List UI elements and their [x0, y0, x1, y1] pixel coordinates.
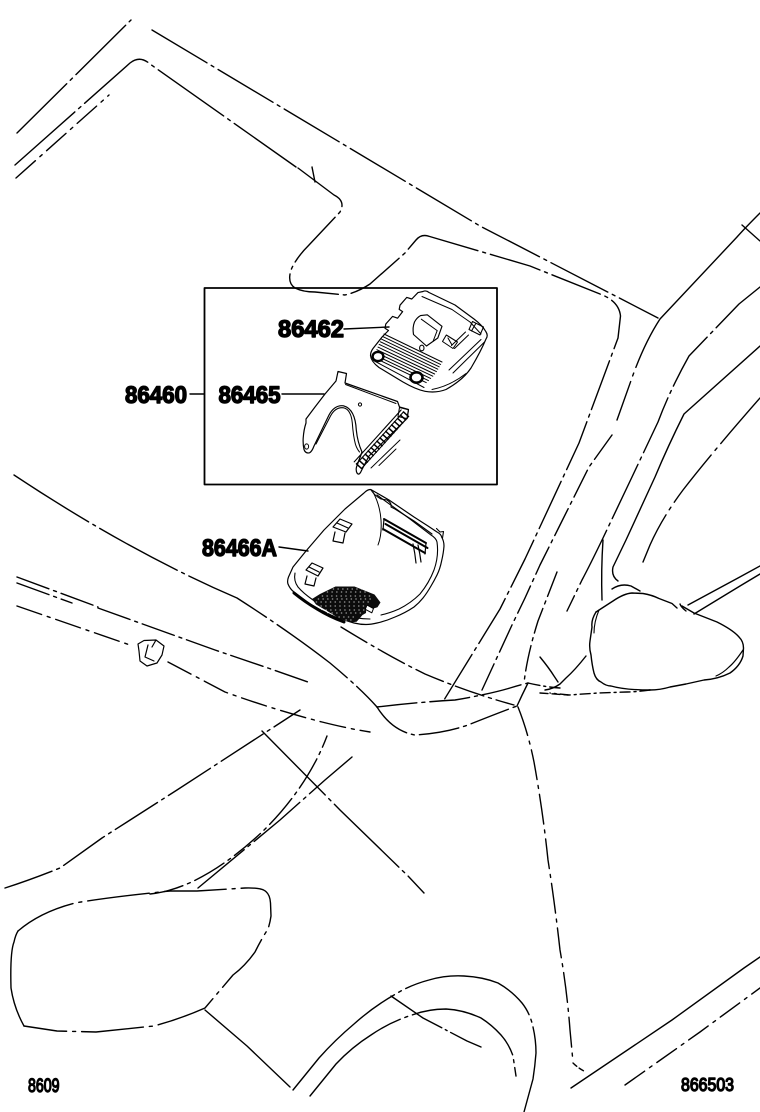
svg-text:86466A: 86466A [202, 535, 277, 562]
svg-text:86460: 86460 [125, 382, 187, 409]
svg-text:866503: 866503 [681, 1075, 734, 1095]
svg-text:86465: 86465 [219, 382, 281, 409]
svg-text:86462: 86462 [278, 316, 344, 343]
svg-text:8609: 8609 [28, 1076, 60, 1097]
